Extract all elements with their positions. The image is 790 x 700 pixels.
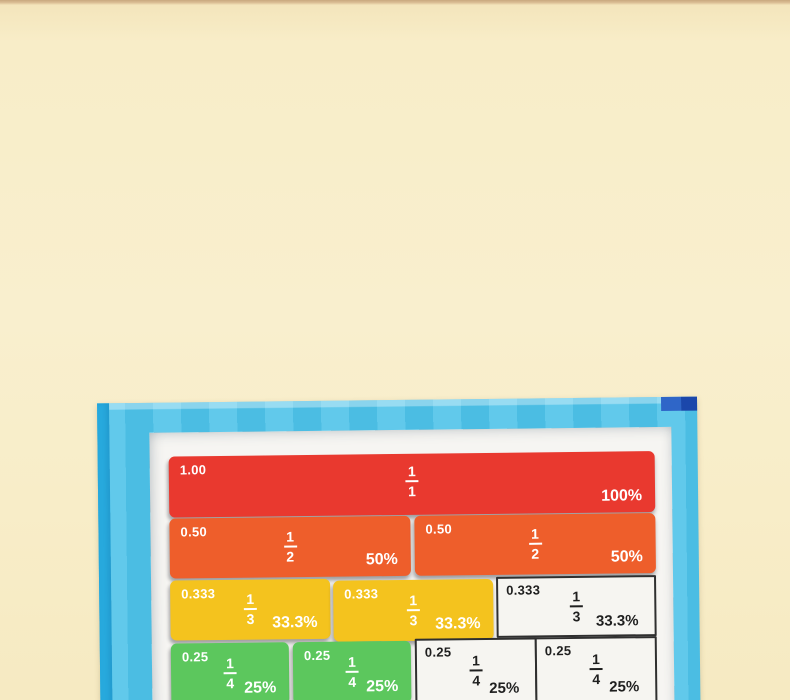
numerator: 1: [348, 655, 356, 669]
fraction-label: 1 4: [469, 653, 482, 687]
percent-label: 25%: [366, 678, 398, 696]
printed-cell-1-4-second: 0.25 1 4 25%: [535, 636, 658, 700]
numerator: 1: [572, 589, 580, 603]
percent-label: 33.3%: [272, 614, 318, 633]
fraction-bar: [529, 543, 542, 545]
numerator: 1: [531, 527, 539, 541]
percent-label: 33.3%: [435, 615, 481, 634]
numerator: 1: [472, 653, 480, 667]
fraction-tile-1-2-second[interactable]: 0.50 1 2 50%: [414, 513, 656, 576]
denominator: 4: [226, 676, 234, 690]
corner-accent-dark: [681, 397, 697, 411]
fraction-bar: [570, 605, 583, 607]
numerator: 1: [286, 529, 294, 543]
denominator: 3: [410, 613, 418, 627]
fraction-tiles-area: 1.00 1 1 100% 0.50 1 2 5: [169, 451, 658, 700]
fraction-bar: [590, 668, 603, 670]
denominator: 4: [348, 675, 356, 689]
fraction-bar: [224, 672, 237, 674]
percent-label: 25%: [609, 678, 639, 695]
fraction-bar: [284, 545, 297, 547]
decimal-label: 0.25: [304, 648, 331, 663]
percent-label: 100%: [601, 487, 642, 505]
denominator: 3: [246, 612, 254, 626]
decimal-label: 0.333: [344, 586, 378, 601]
fraction-label: 1 4: [589, 652, 602, 686]
numerator: 1: [226, 656, 234, 670]
printed-cell-1-3: 0.333 1 3 33.3%: [496, 575, 657, 638]
fraction-tile-1-4-first[interactable]: 0.25 1 4 25%: [171, 642, 290, 700]
board-spine-edge: [97, 403, 113, 700]
fraction-bar: [244, 608, 257, 610]
percent-label: 50%: [366, 551, 398, 569]
denominator: 2: [286, 549, 294, 563]
fraction-label: 1 3: [407, 593, 420, 627]
background-top-edge: [0, 0, 790, 5]
fraction-bar: [405, 480, 418, 482]
fraction-bar: [346, 671, 359, 673]
fraction-bar: [407, 609, 420, 611]
denominator: 3: [572, 609, 580, 623]
percent-label: 25%: [244, 679, 276, 697]
fraction-tile-1-1[interactable]: 1.00 1 1 100%: [169, 451, 656, 518]
percent-label: 25%: [489, 680, 519, 697]
fraction-tile-1-3-second[interactable]: 0.333 1 3 33.3%: [333, 579, 494, 642]
denominator: 4: [592, 672, 600, 686]
product-photo-stage: 1.00 1 1 100% 0.50 1 2 5: [0, 0, 790, 700]
decimal-label: 0.50: [180, 524, 207, 539]
decimal-label: 0.25: [545, 643, 572, 658]
board-corner-accent: [661, 397, 697, 411]
percent-label: 33.3%: [596, 612, 639, 629]
printed-cell-1-4-first: 0.25 1 4 25%: [415, 637, 538, 700]
numerator: 1: [408, 464, 416, 478]
fraction-label: 1 2: [528, 527, 541, 561]
fraction-tile-1-2-first[interactable]: 0.50 1 2 50%: [169, 516, 411, 579]
decimal-label: 0.25: [425, 644, 452, 659]
fraction-label: 1 2: [283, 529, 296, 563]
denominator: 4: [472, 673, 480, 687]
numerator: 1: [246, 592, 254, 606]
fraction-tile-1-3-first[interactable]: 0.333 1 3 33.3%: [170, 579, 331, 641]
numerator: 1: [592, 652, 600, 666]
fraction-label: 1 1: [405, 464, 418, 498]
fraction-label: 1 4: [223, 656, 236, 690]
fraction-label: 1 3: [570, 589, 583, 623]
decimal-label: 0.333: [506, 582, 540, 597]
percent-label: 50%: [611, 548, 643, 566]
decimal-label: 0.333: [181, 586, 215, 601]
decimal-label: 0.50: [425, 521, 452, 536]
fraction-label: 1 3: [244, 592, 257, 626]
numerator: 1: [409, 593, 417, 607]
fraction-bar: [470, 669, 483, 671]
decimal-label: 0.25: [182, 649, 209, 664]
denominator: 2: [531, 547, 539, 561]
board-page: 1.00 1 1 100% 0.50 1 2 5: [149, 427, 675, 700]
fraction-label: 1 4: [345, 655, 358, 689]
corner-accent-light: [661, 397, 682, 411]
decimal-label: 1.00: [180, 462, 207, 477]
fraction-board: 1.00 1 1 100% 0.50 1 2 5: [97, 397, 701, 700]
denominator: 1: [408, 484, 416, 498]
fraction-tile-1-4-second[interactable]: 0.25 1 4 25%: [293, 641, 412, 700]
